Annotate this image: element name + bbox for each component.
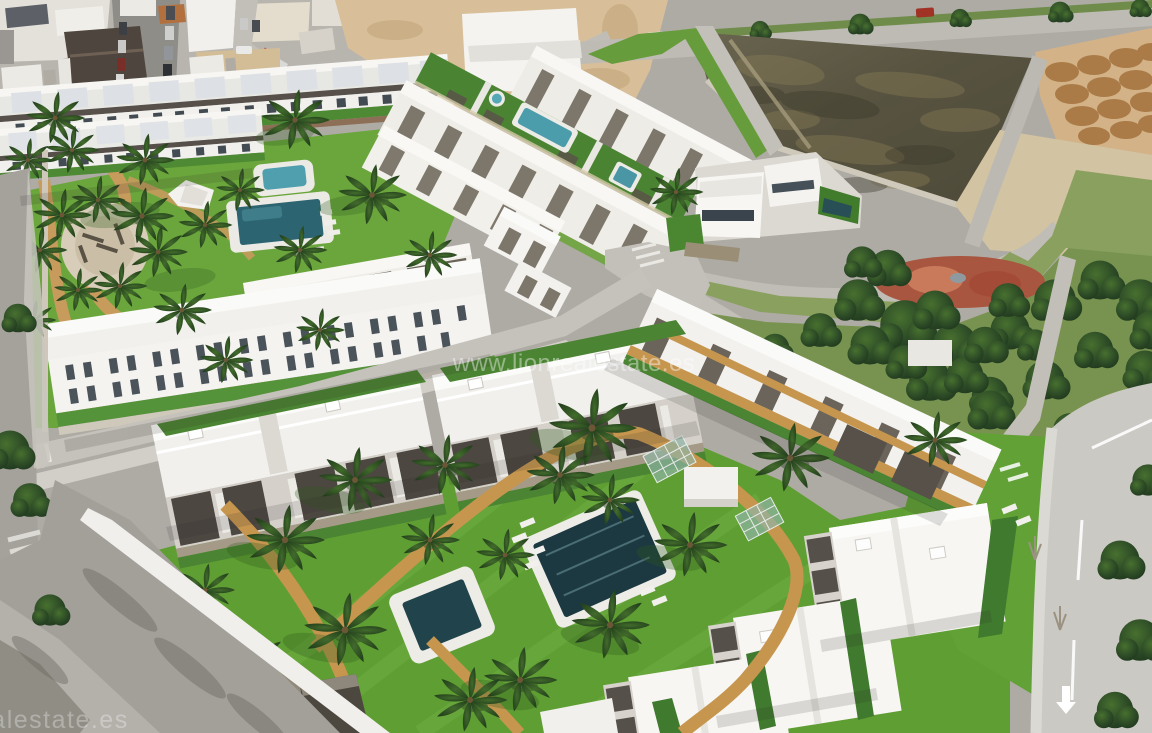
svg-text:www.lionrealestate.es: www.lionrealestate.es <box>452 350 696 377</box>
svg-text:alestate.es: alestate.es <box>0 706 129 733</box>
